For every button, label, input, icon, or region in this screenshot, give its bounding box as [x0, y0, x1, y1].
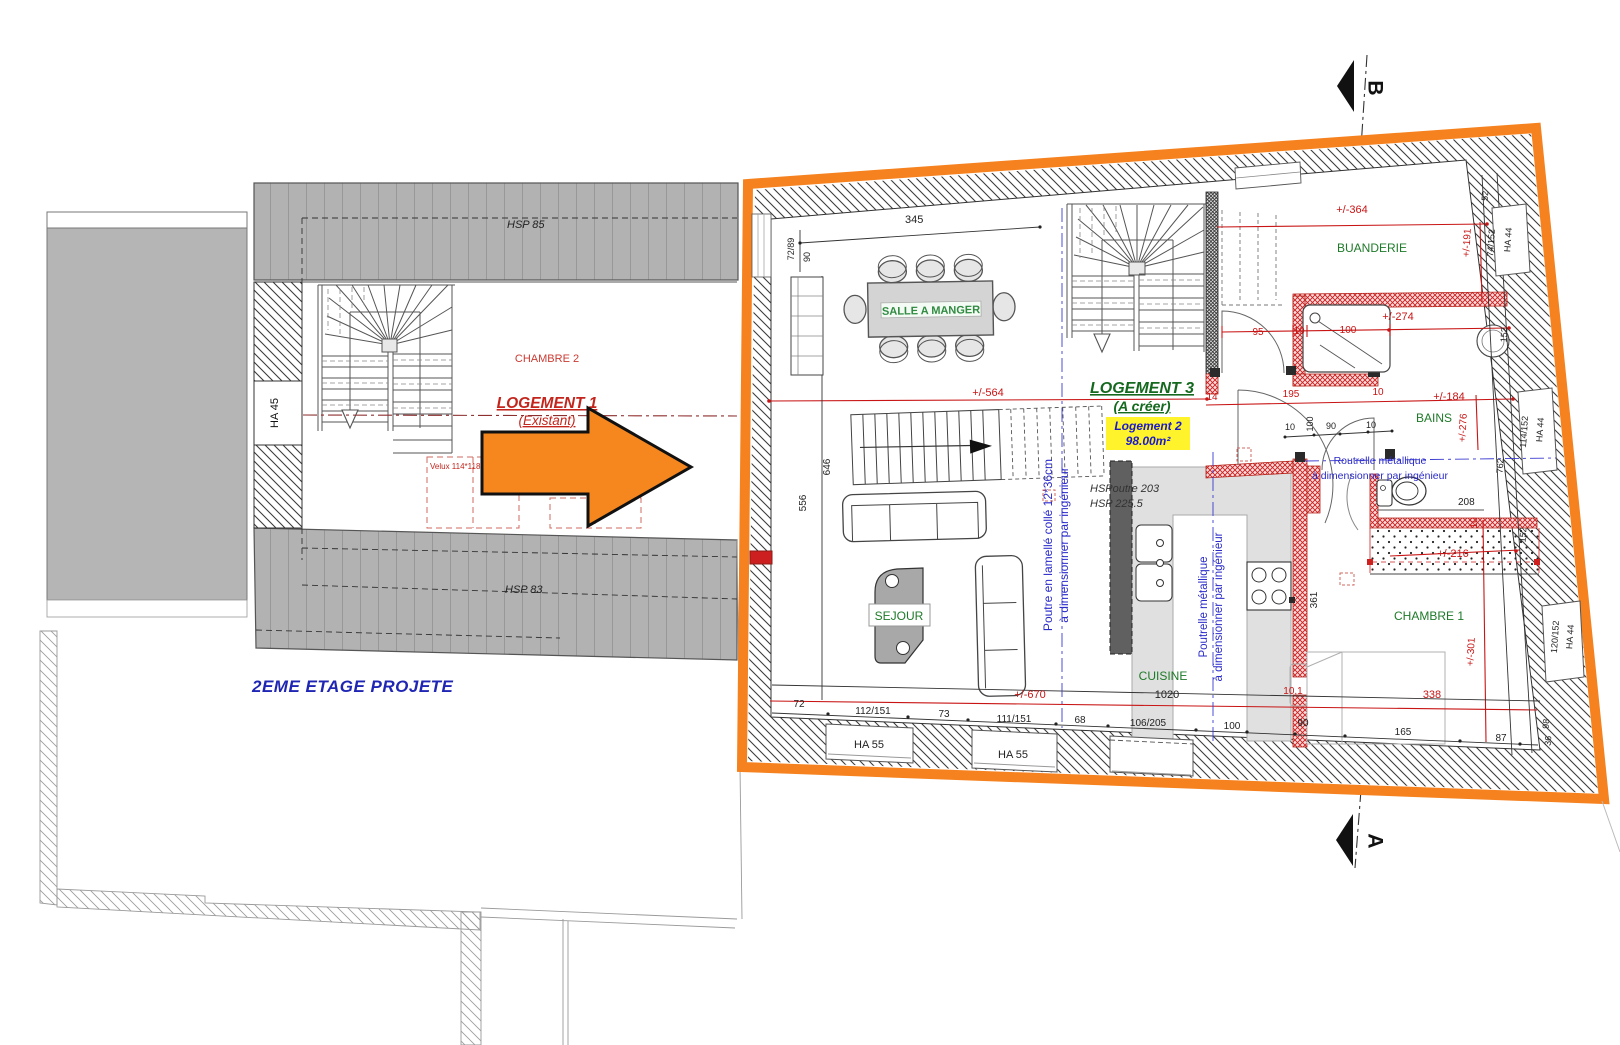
svg-text:+/-364: +/-364 [1336, 204, 1368, 216]
svg-text:646: 646 [822, 458, 833, 475]
svg-text:HA 45: HA 45 [269, 398, 281, 428]
svg-text:10,1: 10,1 [1283, 686, 1303, 697]
svg-text:345: 345 [905, 214, 923, 226]
svg-text:100: 100 [1340, 325, 1357, 336]
svg-text:à dimensionner par ingénieur: à dimensionner par ingénieur [1312, 470, 1449, 482]
svg-text:LOGEMENT 3: LOGEMENT 3 [1090, 380, 1194, 397]
svg-text:106/205: 106/205 [1130, 718, 1167, 729]
svg-text:B: B [1363, 80, 1386, 95]
svg-text:+/-564: +/-564 [972, 387, 1004, 399]
svg-text:90: 90 [1326, 421, 1336, 431]
svg-text:152: 152 [1517, 527, 1528, 543]
svg-text:Routrelle métallique: Routrelle métallique [1334, 455, 1427, 467]
svg-text:Velux 114*118: Velux 114*118 [430, 462, 481, 471]
svg-text:52: 52 [1480, 190, 1491, 201]
svg-text:68: 68 [1074, 715, 1086, 726]
svg-text:HA 44: HA 44 [1502, 227, 1514, 252]
svg-text:10: 10 [1469, 517, 1481, 529]
svg-text:CHAMBRE 1: CHAMBRE 1 [1394, 609, 1464, 623]
svg-text:10: 10 [1293, 326, 1305, 337]
svg-text:338: 338 [1423, 689, 1441, 701]
svg-text:152: 152 [1498, 327, 1509, 343]
svg-text:Poutrelle métallique: Poutrelle métallique [1198, 556, 1210, 657]
svg-text:73: 73 [938, 709, 950, 720]
svg-text:165: 165 [1395, 727, 1412, 738]
svg-text:195: 195 [1283, 389, 1300, 400]
svg-text:+/-216: +/-216 [1437, 548, 1469, 560]
svg-text:90: 90 [1297, 718, 1309, 729]
svg-text:361: 361 [1309, 591, 1320, 608]
svg-text:HSP 85: HSP 85 [507, 219, 545, 231]
svg-text:HSP 225.5: HSP 225.5 [1090, 498, 1144, 510]
svg-text:SALLE A MANGER: SALLE A MANGER [882, 304, 980, 318]
svg-text:95: 95 [1252, 327, 1264, 338]
svg-text:BAINS: BAINS [1416, 411, 1452, 425]
svg-text:98: 98 [1541, 718, 1552, 729]
svg-text:10: 10 [1366, 420, 1376, 430]
svg-text:à dimensionner par ingénieur: à dimensionner par ingénieur [1213, 532, 1225, 681]
svg-text:(A créer): (A créer) [1113, 398, 1170, 414]
svg-text:2EME ETAGE PROJETE: 2EME ETAGE PROJETE [251, 677, 454, 696]
svg-text:111/151: 111/151 [997, 714, 1032, 725]
svg-text:HA 55: HA 55 [998, 749, 1028, 761]
svg-text:HA 55: HA 55 [854, 739, 884, 751]
svg-text:87: 87 [1495, 733, 1507, 744]
svg-text:762: 762 [1494, 458, 1505, 474]
svg-text:90: 90 [802, 252, 812, 262]
svg-text:SEJOUR: SEJOUR [875, 609, 924, 623]
svg-text:98.00m²: 98.00m² [1126, 434, 1172, 448]
svg-text:100: 100 [1224, 721, 1241, 732]
svg-text:HA 44: HA 44 [1534, 417, 1546, 442]
svg-text:+/-276: +/-276 [1457, 413, 1470, 443]
svg-text:10: 10 [1372, 387, 1384, 398]
svg-text:36: 36 [1543, 735, 1554, 746]
svg-text:HA 44: HA 44 [1564, 624, 1576, 649]
svg-text:Logement 2: Logement 2 [1114, 419, 1182, 433]
svg-text:+/-670: +/-670 [1014, 689, 1046, 701]
svg-text:1020: 1020 [1155, 689, 1179, 701]
svg-text:112/151: 112/151 [855, 706, 891, 717]
svg-text:à dimensionner par ingénieur: à dimensionner par ingénieur [1057, 467, 1071, 622]
svg-text:14: 14 [1206, 392, 1218, 403]
svg-text:HSP 83: HSP 83 [505, 584, 543, 596]
svg-text:+/-191: +/-191 [1461, 228, 1474, 258]
svg-text:LOGEMENT 1: LOGEMENT 1 [497, 395, 598, 412]
svg-text:208: 208 [1458, 497, 1475, 508]
svg-text:BUANDERIE: BUANDERIE [1337, 241, 1407, 255]
svg-text:CUISINE: CUISINE [1139, 669, 1188, 683]
svg-text:72/89: 72/89 [786, 238, 796, 261]
svg-text:+/-274: +/-274 [1382, 311, 1414, 323]
svg-text:10: 10 [1285, 422, 1295, 432]
svg-text:CHAMBRE 2: CHAMBRE 2 [515, 353, 579, 365]
svg-text:Poutre en lamellé collé 12*36c: Poutre en lamellé collé 12*36cm [1041, 459, 1055, 631]
svg-text:556: 556 [798, 494, 809, 511]
svg-text:+/-301: +/-301 [1465, 637, 1478, 667]
svg-text:A: A [1363, 833, 1386, 848]
svg-text:HSPoutre 203: HSPoutre 203 [1090, 483, 1160, 495]
svg-text:72: 72 [793, 699, 805, 710]
svg-text:+/-184: +/-184 [1433, 391, 1465, 403]
svg-text:100: 100 [1305, 416, 1315, 431]
svg-text:74/152: 74/152 [1485, 229, 1497, 257]
